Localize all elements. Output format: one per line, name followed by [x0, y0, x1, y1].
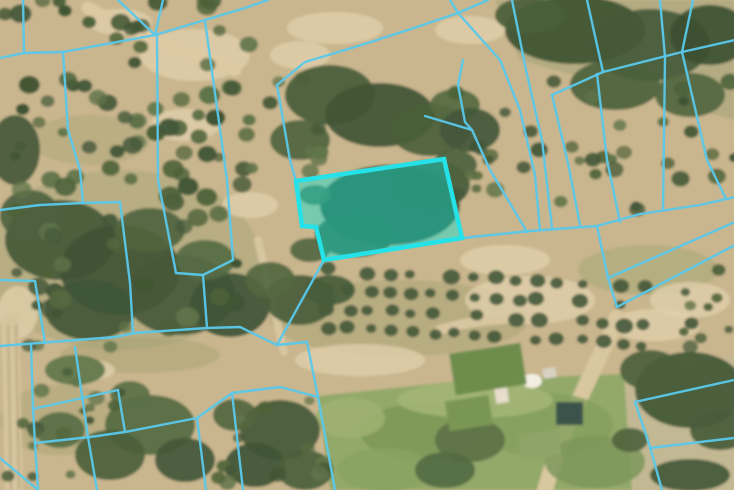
- aerial-map-svg: [0, 0, 734, 490]
- map-viewport[interactable]: [0, 0, 734, 490]
